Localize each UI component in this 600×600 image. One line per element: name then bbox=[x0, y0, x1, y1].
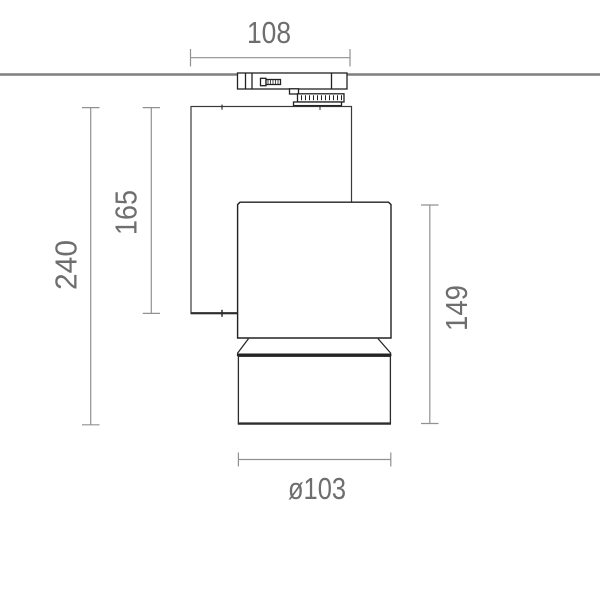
front-cylinder bbox=[238, 356, 390, 424]
locking-screw-head bbox=[261, 78, 267, 85]
dim-diameter-label: ø103 bbox=[288, 471, 346, 506]
dimension-drawing-canvas: 108 240 165 149 ø103 bbox=[0, 0, 600, 600]
adapter-housing bbox=[238, 73, 348, 89]
dim-height-head bbox=[421, 205, 439, 424]
dim-width-top bbox=[191, 49, 351, 67]
dim-height-body-label: 165 bbox=[109, 190, 144, 235]
lens-cone-left-edge bbox=[237, 339, 248, 354]
dim-width-top-label: 108 bbox=[247, 15, 291, 50]
dim-height-overall bbox=[82, 108, 100, 425]
lens-cone-right-edge bbox=[378, 339, 391, 354]
lamp-head bbox=[238, 202, 391, 338]
track-adapter-group bbox=[238, 73, 348, 106]
dim-height-body bbox=[143, 108, 160, 314]
dim-diameter-front bbox=[238, 453, 390, 467]
ring-flange bbox=[294, 102, 342, 106]
dim-height-overall-label: 240 bbox=[49, 240, 84, 290]
front-cylinder-group bbox=[238, 356, 391, 424]
lens-cone bbox=[237, 339, 391, 354]
dim-height-head-label: 149 bbox=[439, 285, 474, 331]
track-spotlight-drawing: 108 240 165 149 ø103 bbox=[0, 0, 600, 600]
